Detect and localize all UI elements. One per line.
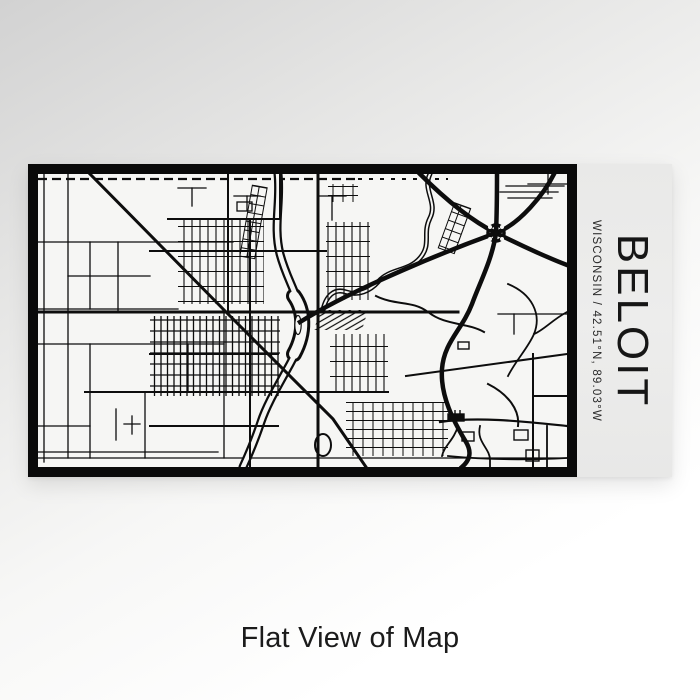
view-caption: Flat View of Map [0,622,700,655]
map-engraving [28,164,577,477]
label-text-block: BELOIT WISCONSIN / 42.51°N, 89.03°W [590,164,654,477]
label-area: BELOIT WISCONSIN / 42.51°N, 89.03°W [577,164,672,477]
map-print [28,164,577,477]
coordinates-subtitle: WISCONSIN / 42.51°N, 89.03°W [590,164,602,477]
city-title: BELOIT [609,164,654,477]
product-panel[interactable]: BELOIT WISCONSIN / 42.51°N, 89.03°W [28,164,672,477]
